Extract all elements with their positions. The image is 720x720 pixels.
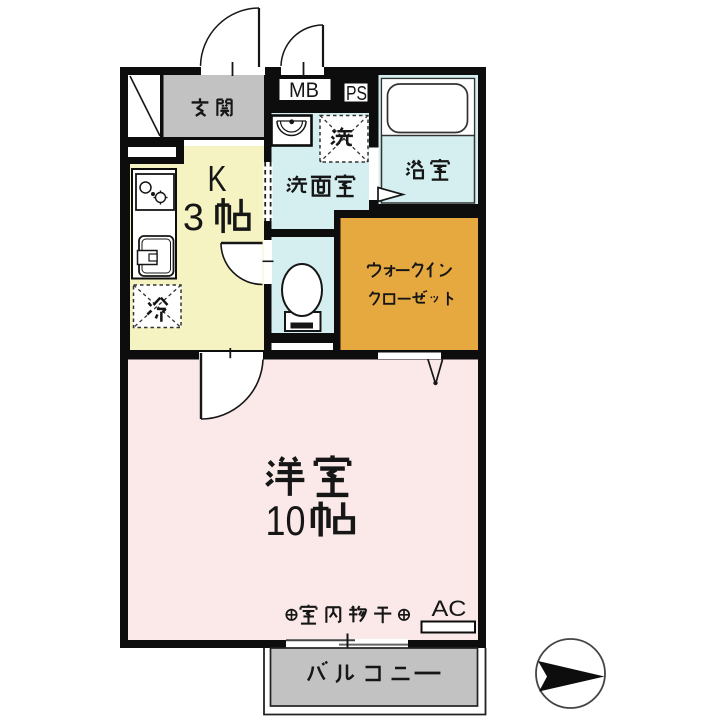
svg-text:AC: AC [432, 596, 467, 621]
svg-text:PS: PS [346, 83, 367, 105]
svg-text:3: 3 [183, 197, 204, 239]
svg-text:K: K [208, 158, 227, 199]
svg-text:MB: MB [289, 79, 319, 102]
svg-text:10: 10 [266, 497, 306, 544]
